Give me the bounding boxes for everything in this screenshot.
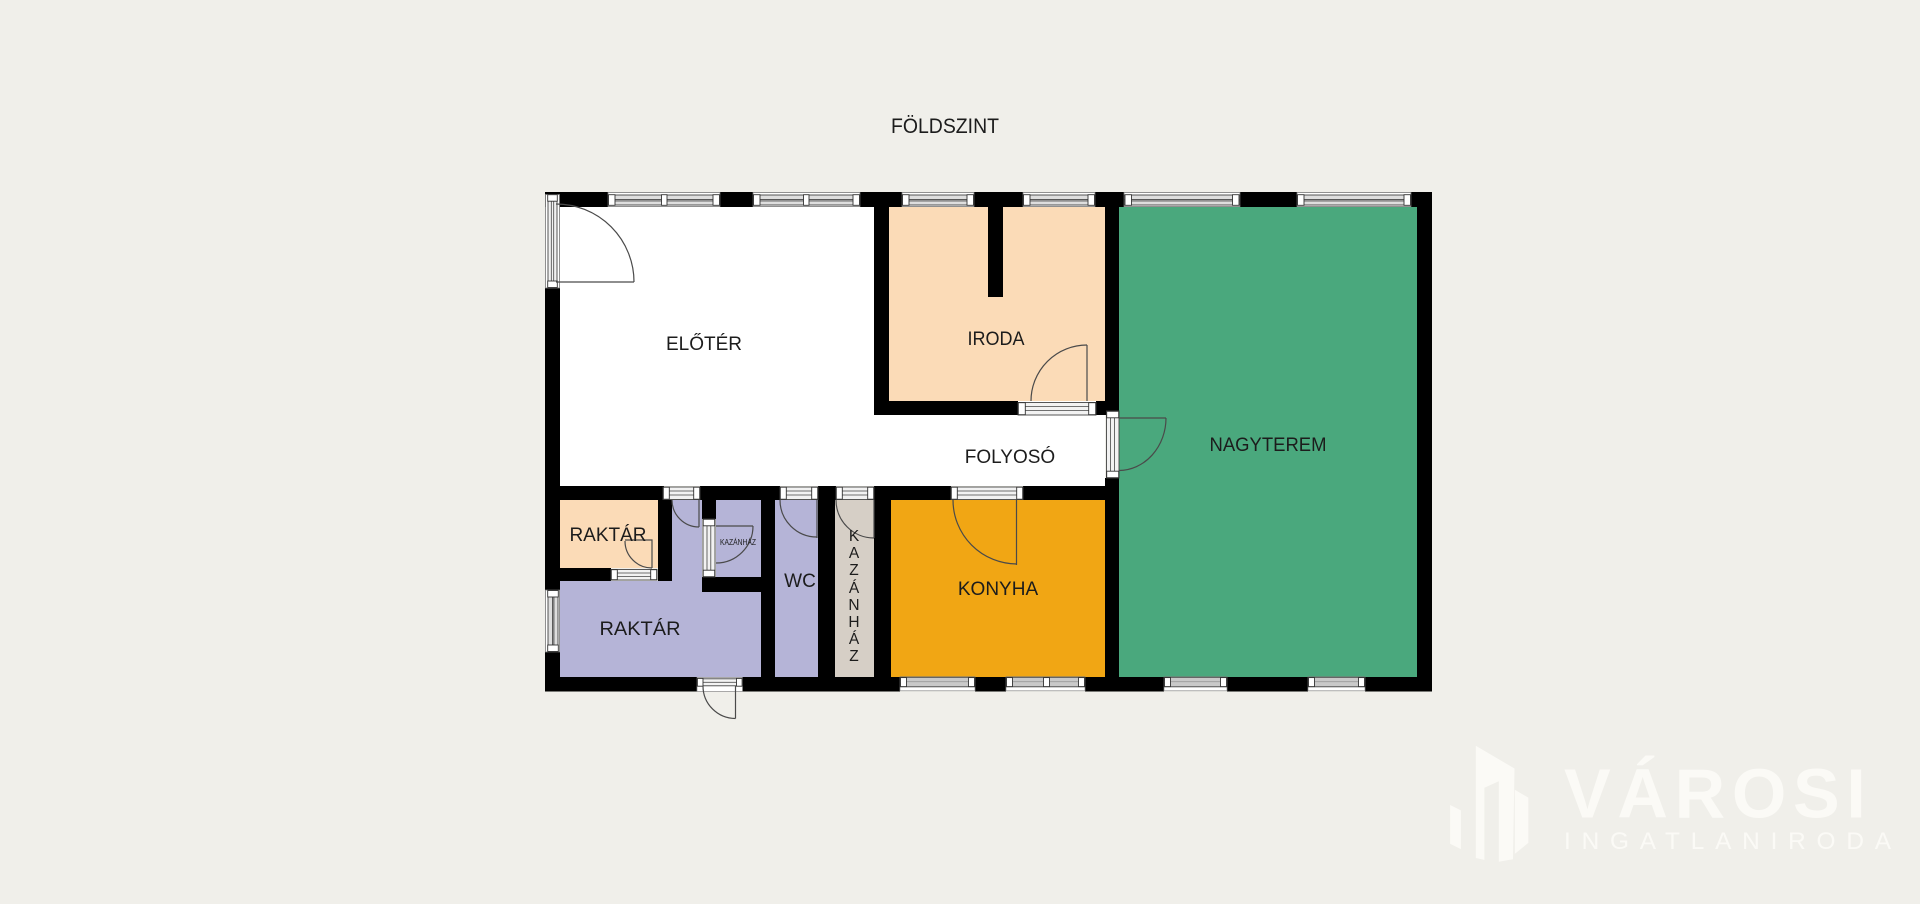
svg-text:IRODA: IRODA — [968, 329, 1025, 350]
svg-text:KAZÁNHÁZ: KAZÁNHÁZ — [720, 538, 756, 547]
svg-text:RAKTÁR: RAKTÁR — [600, 619, 681, 640]
svg-text:INGATLANIRODA: INGATLANIRODA — [1564, 828, 1902, 855]
svg-text:N: N — [848, 597, 859, 614]
svg-text:A: A — [849, 545, 860, 562]
svg-text:Á: Á — [849, 580, 860, 597]
svg-text:FÖLDSZINT: FÖLDSZINT — [891, 115, 999, 138]
svg-text:NAGYTEREM: NAGYTEREM — [1210, 435, 1327, 456]
svg-text:K: K — [849, 528, 860, 545]
svg-text:RAKTÁR: RAKTÁR — [569, 525, 646, 546]
svg-text:H: H — [848, 614, 859, 631]
svg-text:ELŐTÉR: ELŐTÉR — [666, 333, 742, 355]
svg-text:Á: Á — [849, 631, 860, 648]
svg-text:Z: Z — [849, 562, 858, 579]
svg-text:KONYHA: KONYHA — [958, 579, 1039, 600]
svg-text:WC: WC — [784, 571, 816, 592]
svg-text:VÁROSI: VÁROSI — [1564, 755, 1873, 833]
svg-text:FOLYOSÓ: FOLYOSÓ — [965, 446, 1055, 468]
svg-text:Z: Z — [849, 648, 858, 665]
